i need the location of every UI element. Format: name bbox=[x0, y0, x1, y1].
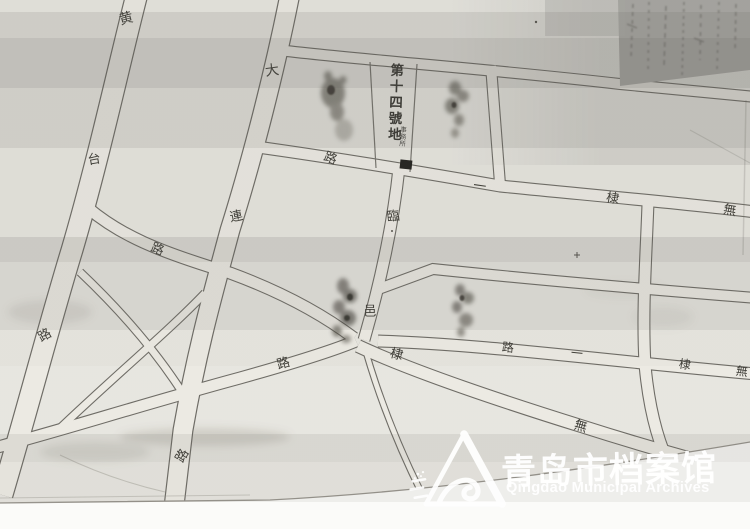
street-label-char: 臨 bbox=[386, 205, 401, 225]
street-label-char: 路 bbox=[148, 237, 167, 259]
street-label-char: 路 bbox=[170, 445, 193, 466]
street-label-char: 棣 bbox=[388, 342, 405, 364]
street-label-char: 一 bbox=[570, 344, 584, 362]
scanned-map-document: 黄台路大連路路路一棣無臨邑路棣無路一棣無 第十四號地 事務所 青岛市档案馆 Qi… bbox=[0, 0, 750, 529]
street-label-char: 黄 bbox=[117, 7, 136, 30]
street-label-char: 連 bbox=[228, 204, 245, 225]
street-label-char: 無 bbox=[572, 414, 590, 436]
street-labels-layer: 黄台路大連路路路一棣無臨邑路棣無路一棣無 bbox=[0, 0, 750, 529]
street-label-char: 大 bbox=[264, 59, 281, 81]
street-label-char: 一 bbox=[472, 175, 488, 196]
street-label-char: 路 bbox=[501, 338, 515, 356]
building-annotation-label: 事務所 bbox=[395, 126, 406, 148]
street-label-char: 棣 bbox=[678, 355, 692, 374]
street-label-char: 棣 bbox=[605, 187, 621, 208]
street-label-char: 路 bbox=[274, 351, 292, 373]
street-label-char: 台 bbox=[86, 148, 102, 169]
street-label-char: 無 bbox=[722, 199, 738, 220]
street-label-char: 邑 bbox=[363, 301, 376, 320]
street-label-char: 路 bbox=[34, 323, 55, 346]
street-label-char: 無 bbox=[735, 362, 749, 381]
street-label-char: 路 bbox=[321, 146, 340, 168]
building-marker bbox=[400, 159, 413, 169]
